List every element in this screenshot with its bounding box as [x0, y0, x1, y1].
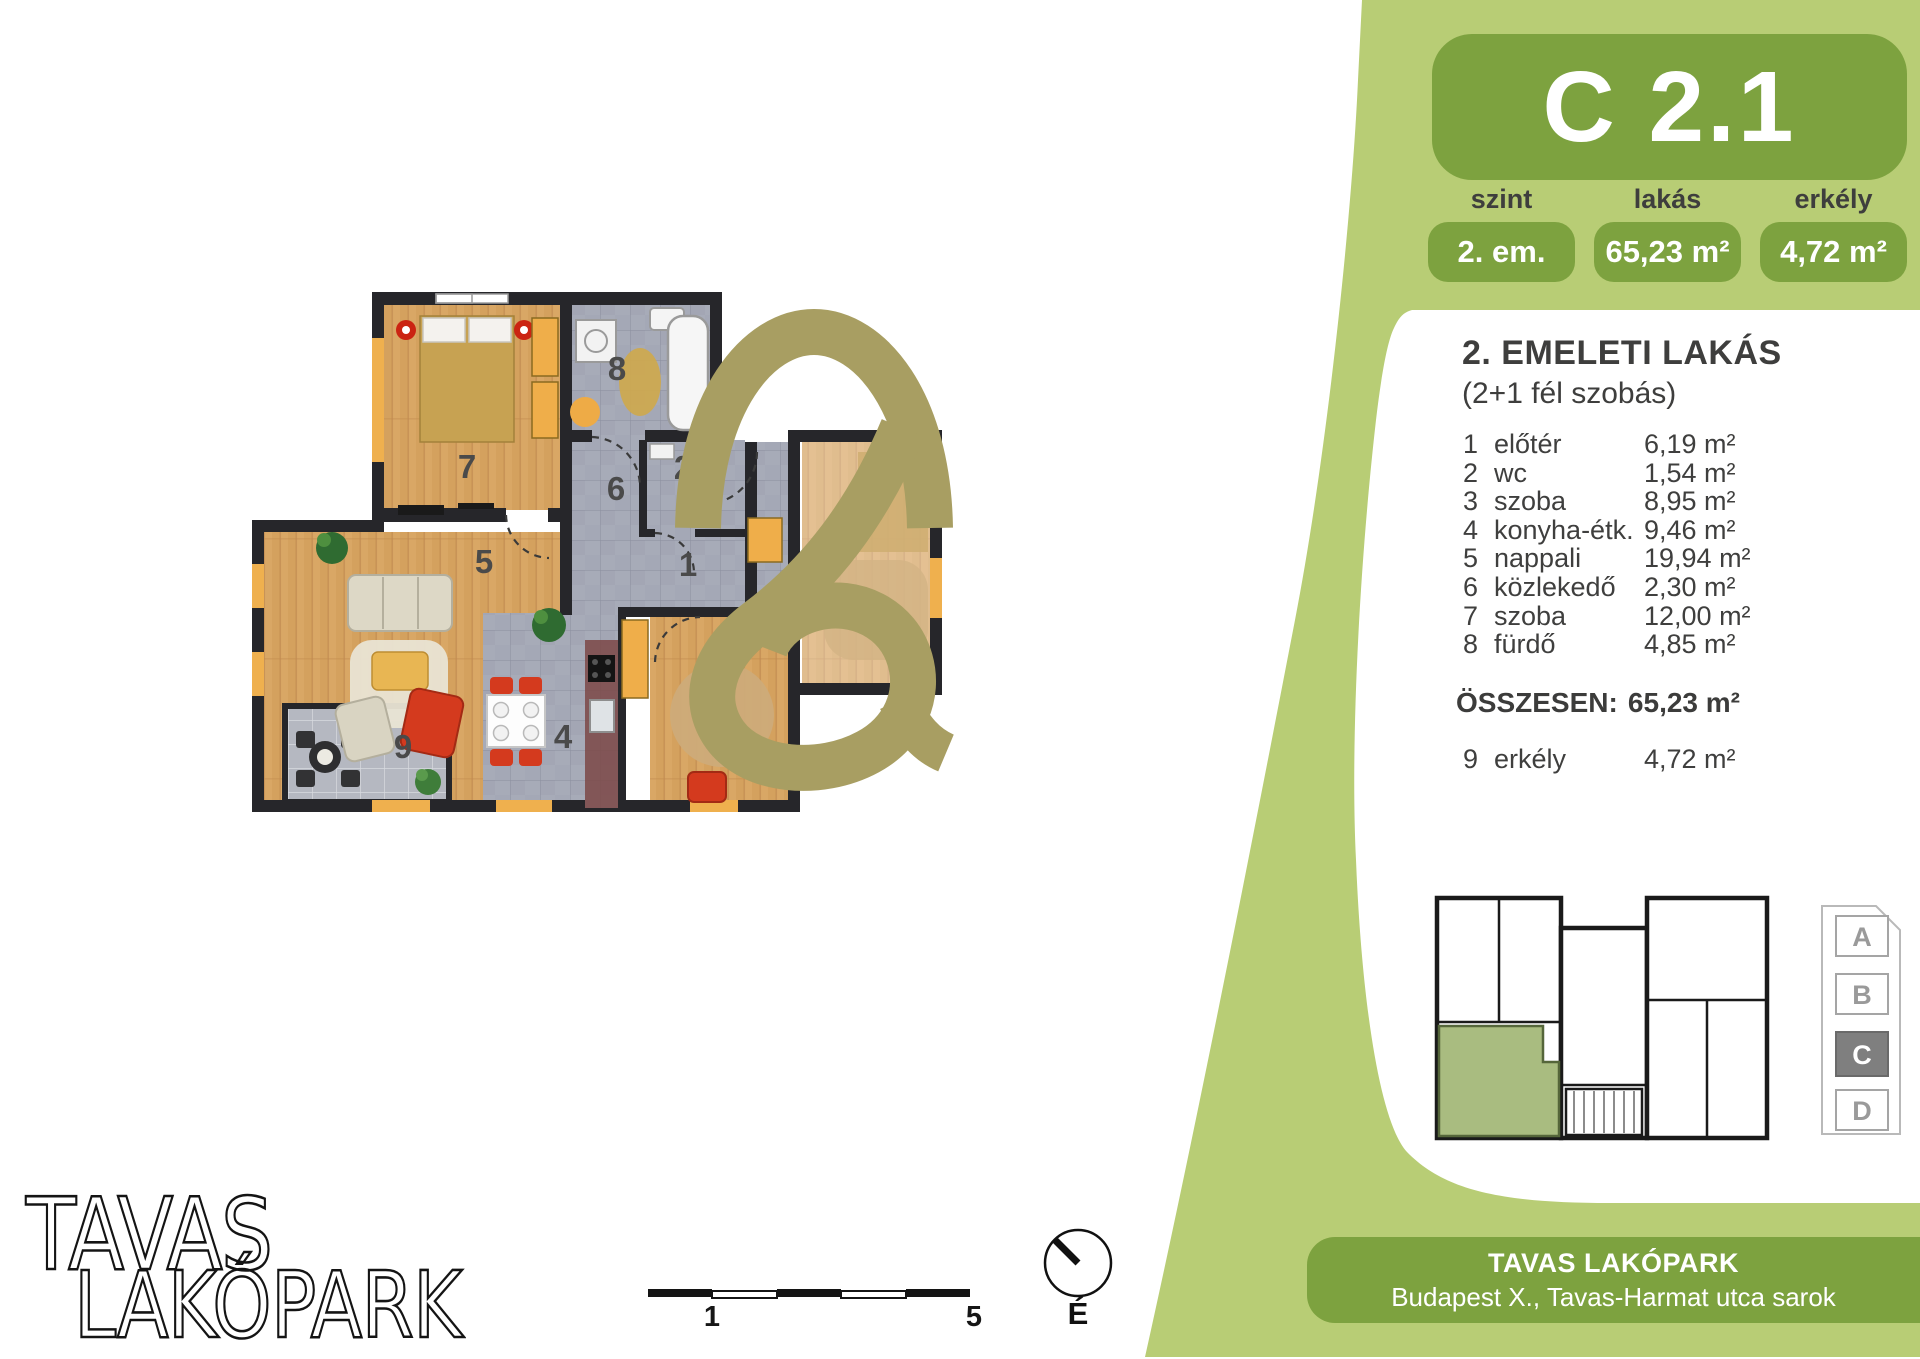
- main-floorplan: [252, 292, 942, 812]
- room-list-row: 5 nappali 19,94 m²: [1456, 544, 1786, 573]
- floorplan-brochure-page: { "panel": { "unit_code": "C 2.1", "stat…: [0, 0, 1920, 1357]
- card-title: 2. EMELETI LAKÁS: [1462, 334, 1782, 373]
- room-list-row: 7 szoba 12,00 m²: [1456, 602, 1786, 631]
- building-option-d[interactable]: D: [1836, 1096, 1888, 1127]
- plan-room-number-5: 5: [469, 543, 499, 581]
- building-option-a[interactable]: A: [1836, 922, 1888, 953]
- balcony-row: 9 erkély 4,72 m²: [1456, 745, 1786, 774]
- compass-north-label: É: [1058, 1296, 1098, 1332]
- room-list-row: 2 wc 1,54 m²: [1456, 459, 1786, 488]
- room-list-row: 3 szoba 8,95 m²: [1456, 487, 1786, 516]
- footer-project-name: TAVAS LAKÓPARK: [1488, 1248, 1739, 1279]
- scale-bar: [648, 1289, 970, 1298]
- plan-room-number-2: 2: [668, 449, 698, 487]
- stat-value-lakas: 65,23 m²: [1594, 222, 1741, 282]
- building-option-b[interactable]: B: [1836, 980, 1888, 1011]
- total-area: 65,23 m²: [1628, 687, 1740, 719]
- plan-room-number-8: 8: [602, 350, 632, 388]
- unit-code-badge: C 2.1: [1432, 34, 1907, 180]
- stat-label-erkely: erkély: [1760, 184, 1907, 215]
- plan-room-number-6: 6: [601, 470, 631, 508]
- scale-end-label: 5: [959, 1301, 989, 1334]
- stat-value-szint: 2. em.: [1428, 222, 1575, 282]
- card-subtitle: (2+1 fél szobás): [1462, 377, 1676, 411]
- plan-room-number-1: 1: [673, 546, 703, 584]
- plan-room-number-4: 4: [548, 718, 578, 756]
- unit-code: C 2.1: [1542, 50, 1796, 165]
- building-option-c[interactable]: C: [1836, 1040, 1888, 1071]
- footer-bar: TAVAS LAKÓPARK Budapest X., Tavas-Harmat…: [1307, 1237, 1920, 1323]
- room-list-row: 1 előtér 6,19 m²: [1456, 430, 1786, 459]
- footer-address: Budapest X., Tavas-Harmat utca sarok: [1391, 1282, 1836, 1313]
- brand-logotype-line2: LAKÓPARK: [74, 1252, 462, 1359]
- room-list-row: 8 fürdő 4,85 m²: [1456, 630, 1786, 659]
- room-list: 1 előtér 6,19 m² 2 wc 1,54 m² 3 szoba 8,…: [1456, 430, 1786, 659]
- total-label: ÖSSZESEN:: [1456, 687, 1618, 719]
- mini-floorplan: [1437, 898, 1767, 1138]
- room-list-row: 6 közlekedő 2,30 m²: [1456, 573, 1786, 602]
- plan-room-number-9: 9: [388, 728, 418, 766]
- room-list-row: 4 konyha-étk. 9,46 m²: [1456, 516, 1786, 545]
- scale-start-label: 1: [697, 1301, 727, 1334]
- plan-room-number-7: 7: [452, 448, 482, 486]
- stat-label-lakas: lakás: [1594, 184, 1741, 215]
- total-row: ÖSSZESEN: 65,23 m²: [1456, 687, 1786, 719]
- north-compass-icon: [1045, 1230, 1111, 1296]
- stat-label-szint: szint: [1428, 184, 1575, 215]
- stat-value-erkely: 4,72 m²: [1760, 222, 1907, 282]
- mini-apartment-highlight: [1439, 1026, 1559, 1136]
